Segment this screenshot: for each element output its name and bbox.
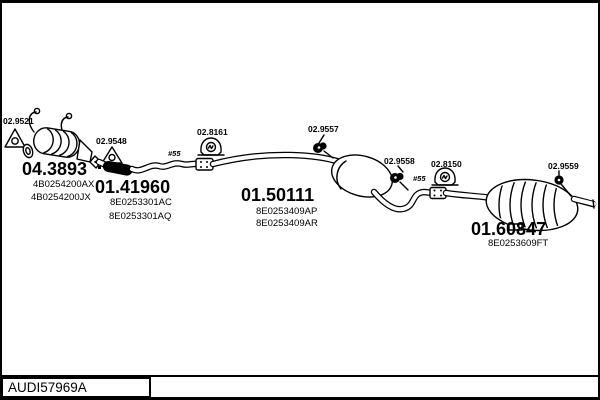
part-ref-centre-muffler: 01.50111 <box>241 186 314 204</box>
part-number-rear-muf-1: 8E0253609FT <box>488 239 548 249</box>
part-number-front-pipe-2: 8E0253301AQ <box>109 212 171 222</box>
part-ref-rear-hanger: 02.8150 <box>431 160 462 169</box>
front-pipe-drawing <box>99 155 340 177</box>
front-hanger-icon <box>198 138 224 155</box>
part-ref-front-hanger: 02.8161 <box>197 128 228 137</box>
part-ref-tail-clamp: 02.9559 <box>548 162 579 171</box>
part-ref-front-pipe: 01.41960 <box>95 178 170 196</box>
drawing-code: AUDI57969A <box>8 380 87 395</box>
part-number-cat-1: 4B0254200AX <box>33 180 94 190</box>
rear-hanger-icon <box>432 168 458 185</box>
part-ref-cat-gasket: 02.9548 <box>96 137 127 146</box>
drawing-code-box: AUDI57969A <box>1 377 151 398</box>
exhaust-catalog-page: 02.9521 02.9548 02.8161 02.9557 02.9558 … <box>0 0 600 400</box>
part-number-front-pipe-1: 8E0253301AC <box>110 198 172 208</box>
marker-55-front: #55 <box>168 150 181 158</box>
part-ref-catalytic-converter: 04.3893 <box>22 160 87 178</box>
mid-clamp-icon <box>390 166 408 190</box>
part-number-cat-2: 4B0254200JX <box>31 193 91 203</box>
part-ref-mid-clamp: 02.9558 <box>384 157 415 166</box>
part-ref-front-gasket: 02.9521 <box>3 117 34 126</box>
part-number-centre-muf-2: 8E0253409AR <box>256 219 318 229</box>
part-ref-front-clamp: 02.9557 <box>308 125 339 134</box>
part-ref-rear-muffler: 01.60847 <box>471 220 546 238</box>
part-number-centre-muf-1: 8E0253409AP <box>256 207 317 217</box>
marker-55-rear: #55 <box>413 175 426 183</box>
